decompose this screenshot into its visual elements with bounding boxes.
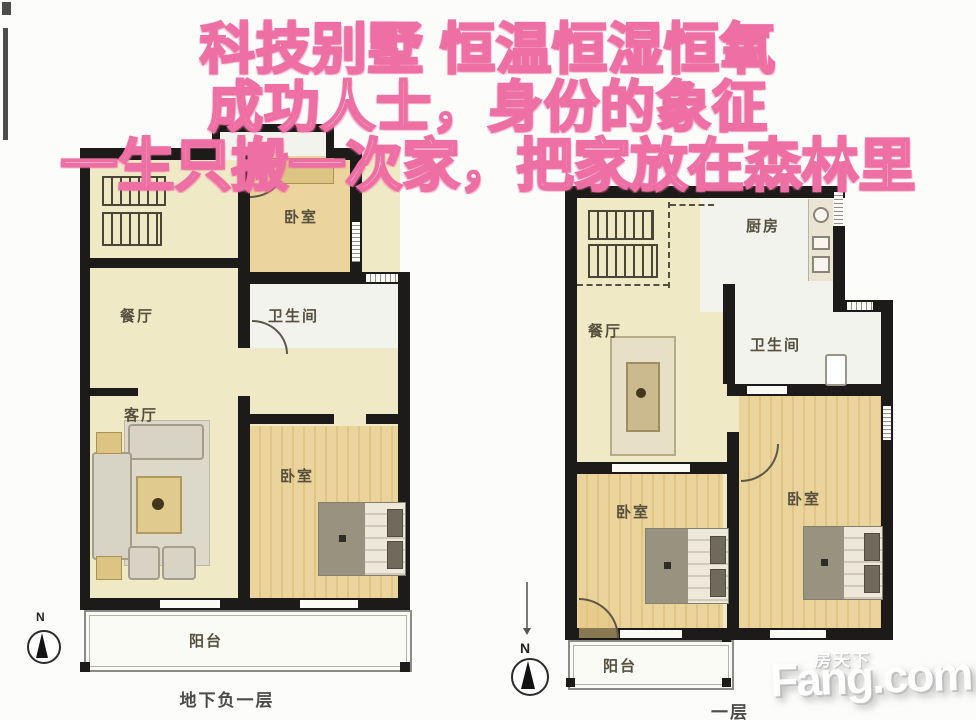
stove-icon <box>812 236 830 250</box>
window-opening <box>620 630 682 638</box>
room-label-kitchen: 厨房 <box>746 215 780 236</box>
side-table-icon <box>96 432 122 454</box>
stairs-dashed-line <box>670 204 714 206</box>
stairs-icon <box>588 210 654 240</box>
plant-icon <box>636 388 646 398</box>
room-label-bedroom: 卧室 <box>616 501 650 522</box>
room-label-bathroom: 卫生间 <box>268 305 319 326</box>
compass-needle <box>521 661 535 689</box>
balcony-pier <box>722 678 731 687</box>
room-label-balcony: 阳台 <box>189 630 223 651</box>
stairs-dashed-line <box>577 284 669 286</box>
window <box>883 406 891 440</box>
wall <box>238 396 250 598</box>
balcony-door-opening <box>300 600 358 608</box>
sink-icon <box>813 207 829 223</box>
side-table-icon <box>96 556 122 580</box>
balcony-rail <box>568 640 734 690</box>
bed-icon <box>803 526 883 600</box>
floor-caption-first: 一层 <box>700 698 760 720</box>
wall <box>366 414 410 424</box>
room-label-dining: 餐厅 <box>120 305 154 326</box>
bed-icon <box>318 502 406 576</box>
room-label-bedroom: 卧室 <box>787 488 821 509</box>
balcony-rail <box>84 610 412 672</box>
balcony-pier <box>722 632 731 642</box>
compass-needle <box>36 633 48 658</box>
window-opening <box>612 464 690 472</box>
wall <box>88 388 138 396</box>
wall <box>88 258 238 268</box>
window-opening <box>770 630 826 638</box>
balcony-pier <box>80 662 90 672</box>
window <box>366 274 400 282</box>
watermark-fang-logo: Fang.com <box>769 647 972 708</box>
sofa-icon <box>128 424 204 460</box>
stairs-icon <box>102 212 162 246</box>
plant-icon <box>152 498 164 510</box>
listing-image-canvas: 卧室 餐厅 卫生间 客厅 卧室 阳台 地下负一层 N <box>0 0 976 720</box>
headline-line-3: 一生只搬一次家，把家放在森林里 <box>0 120 976 202</box>
balcony-door-opening <box>160 600 220 608</box>
stairs-icon <box>588 244 658 278</box>
floor-caption-basement: 地下负一层 <box>177 686 277 711</box>
armchair-icon <box>162 546 196 580</box>
room-label-bedroom: 卧室 <box>284 206 318 227</box>
balcony-pier <box>566 678 575 687</box>
bed-icon <box>645 528 729 604</box>
room-label-bathroom: 卫生间 <box>750 334 801 355</box>
wall <box>80 148 90 610</box>
compass-leader-arrow <box>523 628 531 635</box>
wall <box>565 186 577 640</box>
compass-leader-line <box>526 582 528 628</box>
window <box>847 302 873 310</box>
stairs-dashed-line <box>668 202 670 288</box>
room-label-living: 客厅 <box>124 404 158 425</box>
wall <box>723 284 735 384</box>
toilet-icon <box>825 354 847 386</box>
balcony-pier <box>400 662 410 672</box>
sofa-icon <box>92 452 132 560</box>
room-label-dining: 餐厅 <box>588 320 622 341</box>
armchair-icon <box>128 546 160 580</box>
room-label-balcony: 阳台 <box>603 655 637 676</box>
wall <box>80 598 410 610</box>
wall <box>250 414 334 424</box>
room-label-bedroom: 卧室 <box>280 465 314 486</box>
bathroom-door-opening <box>747 386 787 394</box>
compass-north-label: N <box>36 610 45 624</box>
window <box>352 222 360 262</box>
counter-icon <box>812 256 830 273</box>
compass-north-label: N <box>520 640 530 656</box>
